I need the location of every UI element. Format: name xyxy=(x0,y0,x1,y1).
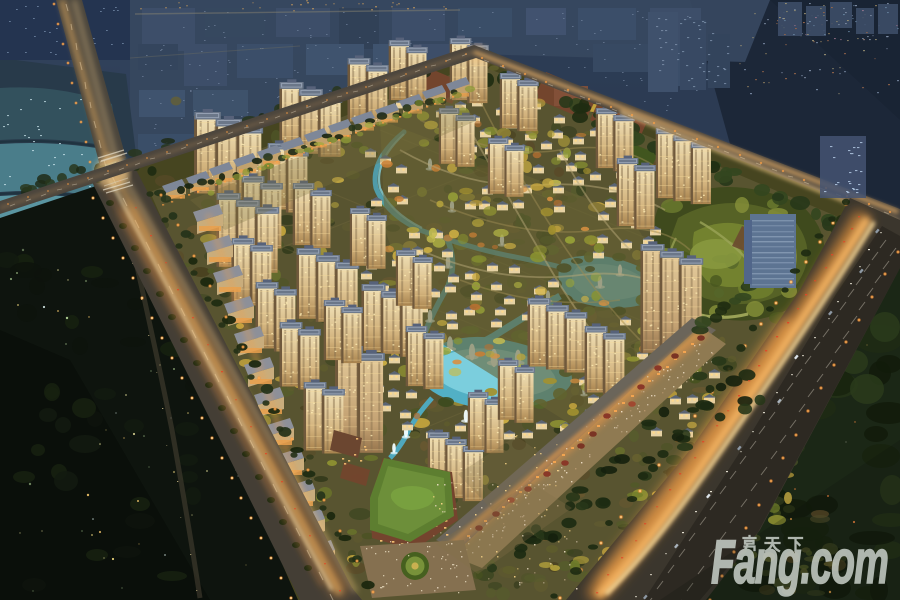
svg-text:Fang.com: Fang.com xyxy=(711,527,888,596)
